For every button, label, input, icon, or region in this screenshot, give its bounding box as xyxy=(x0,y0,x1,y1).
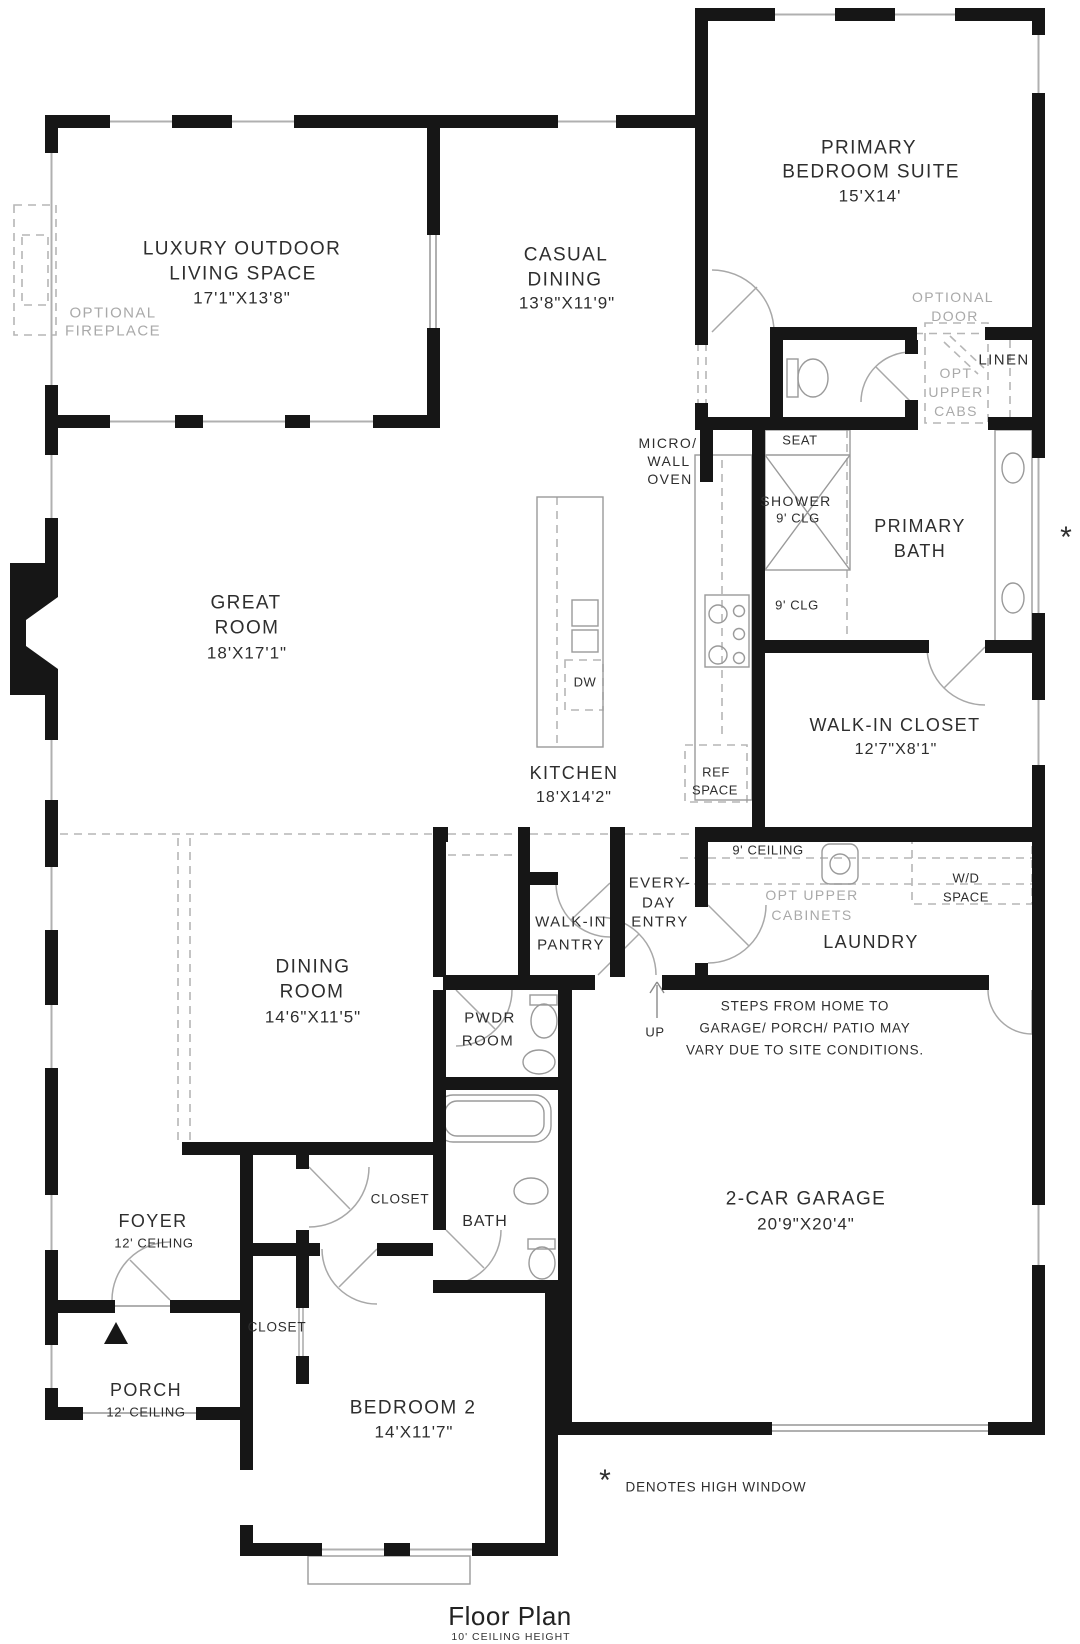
annotation-optional-fireplace-2: FIREPLACE xyxy=(65,324,161,339)
room-label-walk-in-pantry-2: PANTRY xyxy=(537,938,605,953)
room-dims-great-room: 18'X17'1" xyxy=(207,645,287,662)
room-label-bath2: BATH xyxy=(462,1214,507,1230)
stoop xyxy=(308,1556,470,1584)
annotation-wd-2: SPACE xyxy=(943,891,989,904)
room-label-dining-room: DINING xyxy=(276,958,351,977)
room-label-casual-dining: CASUAL xyxy=(524,246,608,265)
room-dims-kitchen: 18'X14'2" xyxy=(536,790,612,806)
annotation-up: UP xyxy=(645,1026,664,1039)
kitchen-counter xyxy=(695,455,752,800)
page-title: Floor Plan xyxy=(448,1603,572,1629)
north-triangle-icon xyxy=(104,1322,128,1344)
room-dims-primary-suite: 15'X14' xyxy=(839,188,902,205)
annotation-9-ceiling: 9' CEILING xyxy=(732,844,803,857)
sink-icon xyxy=(1002,453,1024,483)
annotation-shower-clg: 9' CLG xyxy=(776,512,820,525)
annotation-optional-door: OPTIONAL xyxy=(912,290,994,304)
room-label-foyer-ceiling: 12' CEILING xyxy=(114,1237,193,1250)
annotation-optional-door-2: DOOR xyxy=(931,309,979,323)
annotation-shower: SHOWER xyxy=(760,494,831,508)
annotation-seat: SEAT xyxy=(782,434,817,447)
room-label-garage: 2-CAR GARAGE xyxy=(726,1190,886,1209)
room-label-everyday-entry: EVERY- xyxy=(629,876,692,891)
room-label-laundry: LAUNDRY xyxy=(823,933,919,951)
page-subtitle: 10' CEILING HEIGHT xyxy=(451,1632,570,1643)
media-niche xyxy=(10,563,58,695)
room-label-everyday-entry-2: DAY xyxy=(642,896,676,911)
room-label-walk-in-closet: WALK-IN CLOSET xyxy=(810,716,981,734)
room-label-kitchen: KITCHEN xyxy=(530,764,619,782)
annotation-opt-upper-cabs-3: CABS xyxy=(934,404,978,418)
room-label-walk-in-pantry: WALK-IN xyxy=(535,915,607,930)
room-label-great-room-2: ROOM xyxy=(215,619,280,638)
note-steps-2: GARAGE/ PORCH/ PATIO MAY xyxy=(699,1021,910,1035)
room-label-dining-room-2: ROOM xyxy=(280,983,345,1002)
room-label-pwdr-room: PWDR xyxy=(464,1011,515,1026)
room-label-outdoor-living: LUXURY OUTDOOR xyxy=(143,240,341,259)
sink-icon xyxy=(1002,583,1024,613)
room-dims-garage: 20'9"X20'4" xyxy=(757,1216,855,1233)
room-label-porch-ceiling: 12' CEILING xyxy=(106,1406,185,1419)
room-label-great-room: GREAT xyxy=(210,594,281,613)
room-dims-walk-in-closet: 12'7"X8'1" xyxy=(855,742,938,758)
annotation-ref: REF xyxy=(702,766,730,779)
annotation-micro-wall-oven: MICRO/ xyxy=(639,436,698,450)
room-label-primary-bath: PRIMARY xyxy=(874,517,966,535)
floor-plan: PRIMARY BEDROOM SUITE 15'X14' LUXURY OUT… xyxy=(0,0,1080,1644)
room-label-outdoor-living-2: LIVING SPACE xyxy=(169,265,316,284)
annotation-opt-upper-cabs: OPT xyxy=(940,366,973,380)
annotation-optional-fireplace: OPTIONAL xyxy=(69,306,156,321)
annotation-wd: W/D xyxy=(952,872,979,885)
toilet-icon xyxy=(530,995,557,1038)
laundry-sink-icon xyxy=(822,844,858,884)
room-dims-outdoor-living: 17'1"X13'8" xyxy=(193,290,291,307)
bathtub-icon xyxy=(437,1095,551,1142)
annotation-micro-wall-oven-3: OVEN xyxy=(647,472,692,486)
legend-high-window: DENOTES HIGH WINDOW xyxy=(626,1480,807,1494)
room-label-casual-dining-2: DINING xyxy=(528,271,603,290)
toilet-icon xyxy=(528,1239,555,1279)
up-arrow-icon xyxy=(650,982,664,1018)
legend-asterisk: * xyxy=(599,1466,611,1496)
room-dims-casual-dining: 13'8"X11'9" xyxy=(519,295,615,312)
sink-icon xyxy=(514,1178,548,1204)
room-label-pwdr-room-2: ROOM xyxy=(462,1034,514,1049)
annotation-ref-2: SPACE xyxy=(692,784,738,797)
annotation-opt-upper-cabs-2: UPPER xyxy=(928,385,983,399)
room-label-foyer: FOYER xyxy=(118,1212,187,1230)
note-steps: STEPS FROM HOME TO xyxy=(721,999,889,1013)
room-dims-dining-room: 14'6"X11'5" xyxy=(265,1009,361,1026)
annotation-9-clg: 9' CLG xyxy=(775,599,819,612)
high-window-asterisk: * xyxy=(1060,523,1072,553)
annotation-opt-upper-cabinets: OPT UPPER xyxy=(765,888,858,902)
room-label-everyday-entry-3: ENTRY xyxy=(631,915,689,930)
annotation-linen: LINEN xyxy=(978,353,1029,368)
annotation-opt-upper-cabinets-2: CABINETS xyxy=(771,908,852,922)
note-steps-3: VARY DUE TO SITE CONDITIONS. xyxy=(686,1043,924,1057)
annotation-closet-bedroom2: CLOSET xyxy=(248,1320,307,1334)
room-label-bedroom2: BEDROOM 2 xyxy=(350,1399,477,1418)
room-label-porch: PORCH xyxy=(110,1381,182,1399)
room-label-primary-suite-2: BEDROOM SUITE xyxy=(782,163,960,182)
room-label-primary-bath-2: BATH xyxy=(894,542,946,560)
annotation-micro-wall-oven-2: WALL xyxy=(647,454,690,468)
annotation-dw: DW xyxy=(574,676,597,689)
annotation-closet-hall: CLOSET xyxy=(371,1192,430,1206)
room-dims-bedroom2: 14'X11'7" xyxy=(375,1424,454,1441)
bath-vanity xyxy=(995,430,1032,648)
room-label-primary-suite: PRIMARY xyxy=(821,139,917,158)
cooktop-icon xyxy=(705,595,749,667)
sink-icon xyxy=(523,1050,555,1074)
toilet-icon xyxy=(787,359,828,397)
kitchen-island xyxy=(537,497,603,747)
